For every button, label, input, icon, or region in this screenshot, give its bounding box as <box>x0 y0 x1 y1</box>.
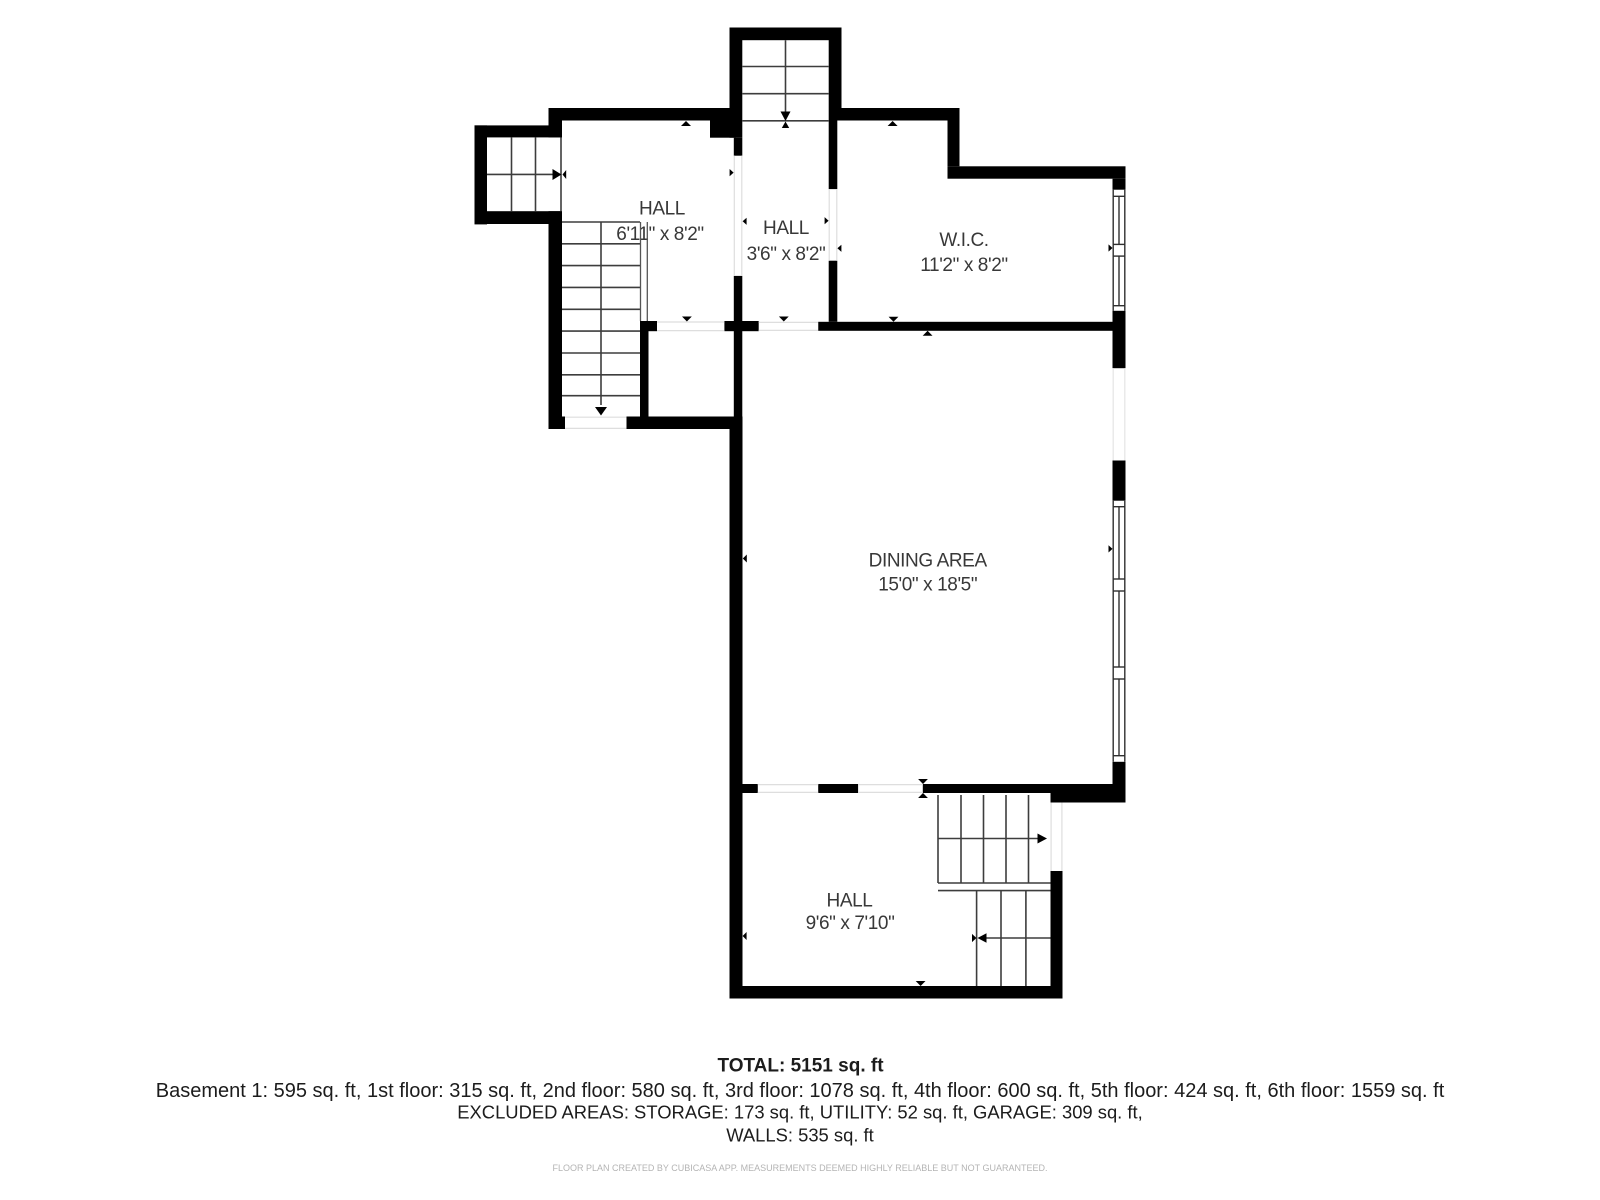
svg-text:3'6" x 8'2": 3'6" x 8'2" <box>747 244 826 265</box>
svg-text:9'6" x 7'10": 9'6" x 7'10" <box>806 913 895 934</box>
svg-text:HALL: HALL <box>639 199 685 220</box>
svg-text:FLOOR PLAN CREATED BY CUBICASA: FLOOR PLAN CREATED BY CUBICASA APP. MEAS… <box>553 1163 1048 1173</box>
svg-text:WALLS: 535 sq. ft: WALLS: 535 sq. ft <box>726 1125 874 1146</box>
svg-text:HALL: HALL <box>763 218 809 239</box>
svg-text:W.I.C.: W.I.C. <box>939 230 988 251</box>
svg-text:11'2" x 8'2": 11'2" x 8'2" <box>920 255 1007 276</box>
svg-text:DINING AREA: DINING AREA <box>869 551 988 572</box>
svg-text:TOTAL: 5151 sq. ft: TOTAL: 5151 sq. ft <box>717 1056 884 1077</box>
svg-text:15'0" x 18'5": 15'0" x 18'5" <box>878 575 977 596</box>
svg-text:6'11" x 8'2": 6'11" x 8'2" <box>616 224 703 245</box>
svg-text:HALL: HALL <box>827 891 873 912</box>
svg-text:Basement 1: 595 sq. ft, 1st fl: Basement 1: 595 sq. ft, 1st floor: 315 s… <box>156 1080 1445 1102</box>
svg-text:EXCLUDED AREAS: STORAGE: 173 s: EXCLUDED AREAS: STORAGE: 173 sq. ft, UTI… <box>457 1102 1142 1123</box>
